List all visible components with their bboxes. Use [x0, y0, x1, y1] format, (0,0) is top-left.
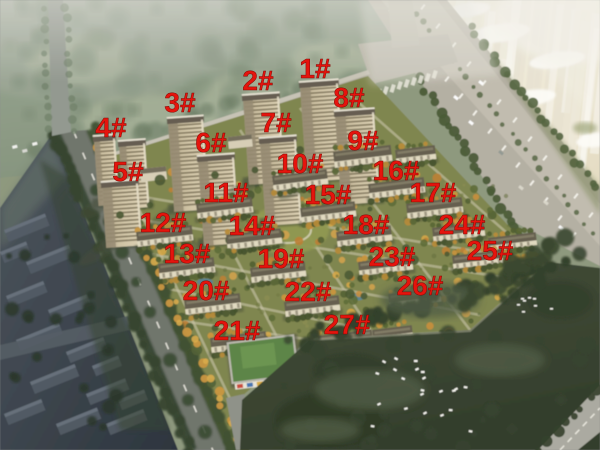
- svg-text:13#: 13#: [164, 238, 211, 269]
- svg-text:5#: 5#: [112, 156, 144, 187]
- svg-text:8#: 8#: [333, 82, 365, 113]
- svg-text:22#: 22#: [285, 276, 332, 307]
- svg-text:21#: 21#: [214, 315, 261, 346]
- svg-text:3#: 3#: [164, 87, 196, 118]
- svg-text:20#: 20#: [183, 275, 230, 306]
- svg-text:9#: 9#: [347, 125, 379, 156]
- svg-text:7#: 7#: [260, 107, 292, 138]
- svg-text:23#: 23#: [369, 241, 416, 272]
- svg-text:17#: 17#: [410, 177, 457, 208]
- svg-text:27#: 27#: [324, 309, 371, 340]
- svg-text:1#: 1#: [299, 53, 331, 84]
- svg-text:14#: 14#: [229, 210, 276, 241]
- svg-text:4#: 4#: [95, 112, 127, 143]
- svg-text:25#: 25#: [467, 235, 514, 266]
- svg-text:15#: 15#: [305, 179, 352, 210]
- svg-text:10#: 10#: [277, 148, 324, 179]
- svg-text:19#: 19#: [258, 243, 305, 274]
- svg-text:12#: 12#: [140, 207, 187, 238]
- svg-text:2#: 2#: [242, 65, 274, 96]
- svg-text:6#: 6#: [195, 127, 227, 158]
- svg-text:11#: 11#: [203, 177, 249, 208]
- svg-text:26#: 26#: [397, 270, 444, 301]
- svg-text:18#: 18#: [343, 209, 390, 240]
